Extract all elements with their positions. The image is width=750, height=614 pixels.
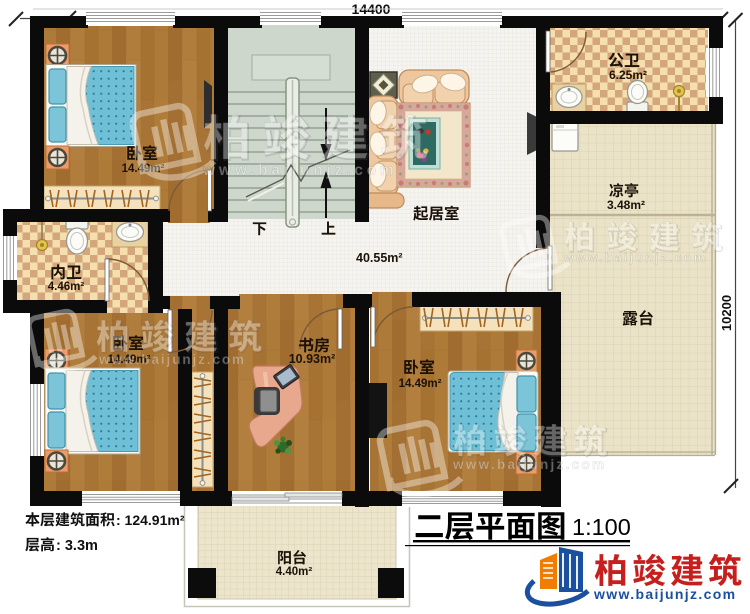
svg-text:4.46m²: 4.46m² <box>48 281 85 293</box>
svg-text:10.93m²: 10.93m² <box>289 352 336 366</box>
svg-text:40.55m²: 40.55m² <box>356 251 403 265</box>
svg-text:10200: 10200 <box>719 295 734 331</box>
svg-text:www.baijunjz.com: www.baijunjz.com <box>593 586 736 602</box>
svg-text:www.baijunjz.com: www.baijunjz.com <box>98 352 246 367</box>
svg-text:14.49m²: 14.49m² <box>399 378 442 390</box>
svg-text:www.baijunjz.com: www.baijunjz.com <box>452 457 606 472</box>
svg-text:: 124.91m²: : 124.91m² <box>116 512 185 528</box>
svg-text:6.25m²: 6.25m² <box>609 68 647 82</box>
svg-text:www.baijunjz.com: www.baijunjz.com <box>202 162 398 179</box>
svg-text:3.48m²: 3.48m² <box>607 198 645 212</box>
svg-text:4.40m²: 4.40m² <box>276 566 313 578</box>
svg-text:www.baijunjz.com: www.baijunjz.com <box>563 251 707 265</box>
svg-text:: 3.3m: : 3.3m <box>56 538 98 554</box>
svg-text:1:100: 1:100 <box>572 514 631 540</box>
